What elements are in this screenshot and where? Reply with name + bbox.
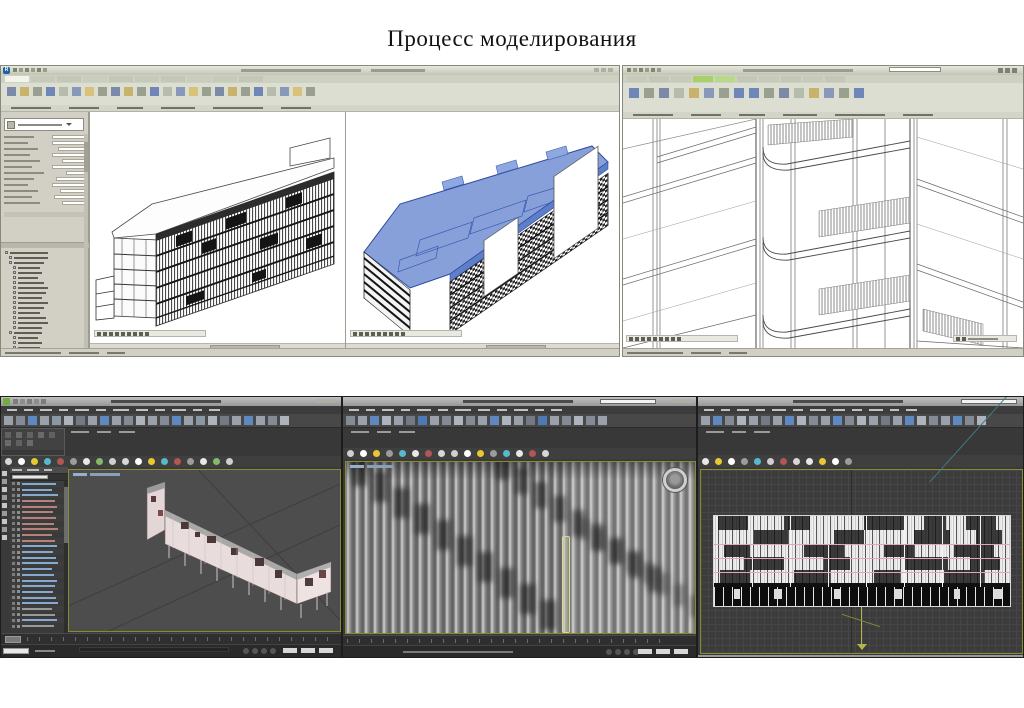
snap-toggle-icon[interactable] [148,458,155,465]
snap-toggle-icon[interactable] [425,450,432,457]
menu-item[interactable] [772,409,786,411]
ribbon-tool-icon[interactable] [674,88,684,98]
toolbar-icon[interactable] [256,416,265,425]
toolbar-icon[interactable] [148,416,157,425]
graphite-ribbon-tabs[interactable] [706,431,778,433]
snap-toggle-icon[interactable] [373,450,380,457]
quick-access-icon[interactable] [25,68,29,72]
ribbon-tab-label[interactable] [732,431,746,433]
snap-toggle-icon[interactable] [516,450,523,457]
snap-toggle-icon[interactable] [702,458,709,465]
toolbar-icon[interactable] [172,416,181,425]
max-titlebar[interactable] [698,397,1023,406]
toolbar-icon[interactable] [64,416,73,425]
toolbar-icon[interactable] [358,416,367,425]
ribbon-tab[interactable] [83,76,107,82]
toolbar-icon[interactable] [40,416,49,425]
snap-toggle-icon[interactable] [438,450,445,457]
ribbon-tool-icon[interactable] [854,88,864,98]
view-control-bar[interactable] [350,330,462,337]
toolbar-icon[interactable] [232,416,241,425]
snaps-toolbar[interactable] [343,448,696,459]
view-control-icon[interactable] [389,332,393,336]
view-control-bar[interactable] [626,335,738,342]
ribbon-tool-icon[interactable] [72,87,81,96]
toolbar-icon[interactable] [773,416,782,425]
menu-item[interactable] [40,409,52,411]
snap-toggle-icon[interactable] [57,458,64,465]
ribbon-tab[interactable] [187,76,211,82]
snap-toggle-icon[interactable] [96,458,103,465]
menu-item[interactable] [514,409,528,411]
snap-toggle-icon[interactable] [819,458,826,465]
pan-icon[interactable] [962,337,966,341]
ribbon-tab[interactable] [803,76,823,82]
ribbon-tab[interactable] [693,76,713,82]
toolbar-icon[interactable] [941,416,950,425]
titlebar-icon[interactable] [1012,68,1017,73]
titlebar-icon[interactable] [1005,68,1010,73]
graphite-ribbon-button[interactable] [38,432,44,438]
menu-bar[interactable] [698,406,1023,414]
menu-item[interactable] [455,409,471,411]
ribbon-tool-icon[interactable] [176,87,185,96]
view-control-icon[interactable] [127,332,131,336]
window-controls[interactable] [672,399,693,403]
explorer-header[interactable] [10,467,68,474]
max-logo-icon[interactable] [3,398,10,405]
snap-toggle-icon[interactable] [542,450,549,457]
titlebar-icons[interactable] [998,68,1019,73]
ribbon-tool-icon[interactable] [137,87,146,96]
toolbar-icon[interactable] [208,416,217,425]
ribbon-tool-icon[interactable] [280,87,289,96]
coordinate-field[interactable] [319,648,333,653]
snap-toggle-icon[interactable] [477,450,484,457]
toolbar-icon[interactable] [586,416,595,425]
ribbon-tool-icon[interactable] [734,88,744,98]
snap-toggle-icon[interactable] [728,458,735,465]
quick-access-icon[interactable] [639,68,643,72]
search-input[interactable] [12,475,48,479]
viewport-layout-tools[interactable] [2,471,10,543]
toolbar-icon[interactable] [598,416,607,425]
ribbon-tab[interactable] [109,76,133,82]
quick-access-icon[interactable] [645,68,649,72]
ribbon-tool-icon[interactable] [749,88,759,98]
toolbar-icon[interactable] [749,416,758,425]
ribbon-tool-icon[interactable] [644,88,654,98]
menu-item[interactable] [75,409,89,411]
quick-access-icon[interactable] [651,68,655,72]
snap-toggle-icon[interactable] [715,458,722,465]
graphite-ribbon-button[interactable] [5,440,11,446]
ribbon-tool-icon[interactable] [306,87,315,96]
snap-toggle-icon[interactable] [451,450,458,457]
transport-button[interactable] [624,649,630,655]
snap-toggle-icon[interactable] [226,458,233,465]
snap-toggle-icon[interactable] [767,458,774,465]
side-tool-icon[interactable] [2,527,7,532]
toolbar-icon[interactable] [466,416,475,425]
toolbar-icon[interactable] [701,416,710,425]
ribbon-tool-icon[interactable] [839,88,849,98]
toolbar-icon[interactable] [797,416,806,425]
toolbar-icon[interactable] [905,416,914,425]
ribbon-tool-icon[interactable] [719,88,729,98]
viewport-front-elevation[interactable] [700,469,1023,654]
ribbon-tool-icon[interactable] [659,88,669,98]
view-control-icon[interactable] [671,337,675,341]
graphite-ribbon-button[interactable] [27,440,33,446]
explorer-search[interactable] [10,474,68,481]
ribbon-tool-icon[interactable] [254,87,263,96]
ribbon-tool-icon[interactable] [267,87,276,96]
ribbon-tab[interactable] [31,76,55,82]
transport-button[interactable] [606,649,612,655]
view-control-icon[interactable] [659,337,663,341]
quick-access-icon[interactable] [627,68,631,72]
ribbon-tab[interactable] [649,76,669,82]
ribbon-tab[interactable] [5,76,29,82]
toolbar-icon[interactable] [442,416,451,425]
snap-toggle-icon[interactable] [70,458,77,465]
search-input[interactable] [889,67,941,72]
view-control-icon[interactable] [383,332,387,336]
menu-item[interactable] [349,409,359,411]
ribbon-tool-icon[interactable] [20,87,29,96]
menu-item[interactable] [366,409,375,411]
revit-logo-icon[interactable]: R [3,67,10,74]
ribbon-tool-icon[interactable] [46,87,55,96]
snap-toggle-icon[interactable] [83,458,90,465]
navigation-bar[interactable] [953,335,1017,342]
menu-item[interactable] [497,409,507,411]
toolbar-icon[interactable] [725,416,734,425]
project-toolbar[interactable] [13,399,48,404]
toolbar-icon[interactable] [76,416,85,425]
titlebar-icon[interactable] [998,68,1003,73]
ribbon-modify[interactable] [623,83,1023,119]
search-input[interactable] [961,399,1017,404]
viewport-3d-selection[interactable] [345,112,620,350]
project-toolbar-icon[interactable] [41,399,46,404]
snap-toggle-icon[interactable] [347,450,354,457]
toolbar-icon[interactable] [112,416,121,425]
quick-access-icon[interactable] [19,68,23,72]
snap-toggle-icon[interactable] [174,458,181,465]
snap-toggle-icon[interactable] [754,458,761,465]
viewport-label[interactable] [350,465,364,468]
project-browser-header[interactable] [1,242,89,248]
quick-access-toolbar[interactable] [13,68,49,72]
toolbar-icon[interactable] [857,416,866,425]
ribbon-tab-label[interactable] [119,431,135,433]
window-control-button[interactable] [601,68,606,72]
viewport-perspective[interactable] [68,469,341,632]
properties-palette[interactable] [1,112,89,348]
menu-item[interactable] [704,409,714,411]
menu-item[interactable] [551,409,562,411]
project-toolbar-icon[interactable] [13,399,18,404]
snap-toggle-icon[interactable] [503,450,510,457]
snap-toggle-icon[interactable] [529,450,536,457]
toolbar-icon[interactable] [136,416,145,425]
snap-toggle-icon[interactable] [44,458,51,465]
graphite-ribbon-button[interactable] [16,440,22,446]
selected-louver[interactable] [562,536,570,633]
menu-item[interactable] [869,409,883,411]
toolbar-icon[interactable] [502,416,511,425]
view-control-icon[interactable] [401,332,405,336]
building-facade-model[interactable] [713,515,1011,607]
explorer-object-list[interactable] [10,481,64,633]
toolbar-icon[interactable] [737,416,746,425]
view-control-icon[interactable] [139,332,143,336]
snap-toggle-icon[interactable] [793,458,800,465]
window-control-button[interactable] [672,399,677,403]
menu-item[interactable] [852,409,862,411]
side-tool-icon[interactable] [2,479,7,484]
menu-item[interactable] [438,409,448,411]
snap-toggle-icon[interactable] [490,450,497,457]
snap-toggle-icon[interactable] [18,458,25,465]
toolbar-icon[interactable] [370,416,379,425]
toolbar-icon[interactable] [478,416,487,425]
view-control-icon[interactable] [365,332,369,336]
toolbar-icon[interactable] [713,416,722,425]
ribbon-tool-icon[interactable] [689,88,699,98]
ribbon-tool-icon[interactable] [241,87,250,96]
ribbon-tool-icon[interactable] [33,87,42,96]
toolbar-icon[interactable] [917,416,926,425]
toolbar-icon[interactable] [893,416,902,425]
toolbar-icon[interactable] [929,416,938,425]
ribbon-tab-bar[interactable] [623,75,1023,83]
time-slider[interactable] [5,636,21,643]
toolbar-icon[interactable] [953,416,962,425]
snap-toggle-icon[interactable] [386,450,393,457]
view-control-icon[interactable] [353,332,357,336]
window-controls[interactable] [594,68,615,72]
side-tool-icon[interactable] [2,487,7,492]
explorer-object-row[interactable] [10,623,64,629]
chevron-down-icon[interactable] [66,123,72,126]
ribbon-tab[interactable] [759,76,779,82]
view-control-icon[interactable] [359,332,363,336]
viewport-label[interactable] [367,465,393,468]
toolbar-icon[interactable] [526,416,535,425]
snap-toggle-icon[interactable] [832,458,839,465]
toolbar-icon[interactable] [184,416,193,425]
view-control-icon[interactable] [629,337,633,341]
menu-item[interactable] [155,409,165,411]
toolbar-icon[interactable] [490,416,499,425]
ribbon-tab-label[interactable] [97,431,111,433]
menu-item[interactable] [401,409,410,411]
max-titlebar[interactable] [1,397,341,406]
toolbar-icon[interactable] [845,416,854,425]
viewport-label[interactable] [350,465,396,468]
ribbon-tab-label[interactable] [706,431,724,433]
ribbon-tool-icon[interactable] [59,87,68,96]
snap-toggle-icon[interactable] [741,458,748,465]
ribbon-tab[interactable] [671,76,691,82]
toolbar-icon[interactable] [881,416,890,425]
coordinate-field[interactable] [656,649,670,654]
toolbar-icon[interactable] [4,416,13,425]
transport-button[interactable] [252,648,258,654]
properties-group-header[interactable] [4,212,84,217]
project-browser-tree[interactable] [3,250,83,350]
toolbar-icon[interactable] [454,416,463,425]
ribbon-tab[interactable] [825,76,845,82]
toolbar-icon[interactable] [574,416,583,425]
view-control-icon[interactable] [145,332,149,336]
window-control-button[interactable] [317,399,322,403]
snap-toggle-icon[interactable] [109,458,116,465]
quick-access-icon[interactable] [13,68,17,72]
graphite-ribbon-tabs[interactable] [351,431,423,433]
toolbar-icon[interactable] [965,416,974,425]
toolbar-icon[interactable] [562,416,571,425]
toolbar-icon[interactable] [394,416,403,425]
timeline[interactable] [343,635,696,645]
ribbon-tab-label[interactable] [377,431,391,433]
graphite-ribbon-panel[interactable] [1,428,65,456]
view-control-icon[interactable] [635,337,639,341]
menu-item[interactable] [24,409,33,411]
toolbar-icon[interactable] [869,416,878,425]
ribbon-tool-icon[interactable] [228,87,237,96]
toolbar-icon[interactable] [268,416,277,425]
ribbon-tab[interactable] [135,76,159,82]
toolbar-icon[interactable] [16,416,25,425]
ribbon-tool-icon[interactable] [111,87,120,96]
main-toolbar[interactable] [1,414,341,428]
quick-access-icon[interactable] [633,68,637,72]
zoom-icon[interactable] [956,337,960,341]
menu-item[interactable] [113,409,129,411]
graphite-ribbon-button[interactable] [49,432,55,438]
ribbon-tool-icon[interactable] [202,87,211,96]
view-control-icon[interactable] [371,332,375,336]
ribbon-tool-icon[interactable] [150,87,159,96]
ribbon-tab-bar[interactable] [1,75,619,83]
viewport-wireframe-detail[interactable] [623,119,1023,348]
view-control-icon[interactable] [115,332,119,336]
snap-toggle-icon[interactable] [360,450,367,457]
snap-toggle-icon[interactable] [161,458,168,465]
toolbar-icon[interactable] [785,416,794,425]
ribbon-tool-icon[interactable] [215,87,224,96]
menu-item[interactable] [59,409,68,411]
side-tool-icon[interactable] [2,535,7,540]
toolbar-icon[interactable] [100,416,109,425]
menu-item[interactable] [890,409,899,411]
quick-access-icon[interactable] [43,68,47,72]
graphite-ribbon-button[interactable] [16,432,22,438]
view-control-icon[interactable] [377,332,381,336]
view-control-icon[interactable] [653,337,657,341]
menu-item[interactable] [382,409,394,411]
menu-item[interactable] [209,409,220,411]
toolbar-icon[interactable] [160,416,169,425]
ribbon-tool-icon[interactable] [98,87,107,96]
toolbar-icon[interactable] [550,416,559,425]
toolbar-icon[interactable] [52,416,61,425]
main-toolbar[interactable] [698,414,1023,428]
snap-toggle-icon[interactable] [845,458,852,465]
ribbon-tool-icon[interactable] [189,87,198,96]
ribbon-tool-icon[interactable] [293,87,302,96]
coordinate-field[interactable] [638,649,652,654]
search-input[interactable] [600,399,656,404]
side-tool-icon[interactable] [2,511,7,516]
window-control-button[interactable] [679,399,684,403]
ribbon-tool-icon[interactable] [809,88,819,98]
viewport-louvers[interactable] [345,461,696,634]
view-control-icon[interactable] [647,337,651,341]
toolbar-icon[interactable] [821,416,830,425]
toolbar-icon[interactable] [244,416,253,425]
ribbon-tool-icon[interactable] [794,88,804,98]
quick-access-toolbar[interactable] [627,68,663,72]
toolbar-icon[interactable] [418,416,427,425]
ribbon-tool-icon[interactable] [704,88,714,98]
toolbar-icon[interactable] [761,416,770,425]
steering-wheel-icon[interactable] [663,468,687,492]
side-tool-icon[interactable] [2,471,7,476]
snap-toggle-icon[interactable] [135,458,142,465]
snap-toggle-icon[interactable] [122,458,129,465]
toolbar-icon[interactable] [28,416,37,425]
window-control-button[interactable] [686,399,691,403]
snap-toggle-icon[interactable] [31,458,38,465]
toolbar-icon[interactable] [833,416,842,425]
toolbar-icon[interactable] [88,416,97,425]
snap-toggle-icon[interactable] [780,458,787,465]
menu-item[interactable] [172,409,186,411]
max-titlebar[interactable] [343,397,696,406]
ribbon-tab[interactable] [213,76,237,82]
ribbon-tab[interactable] [57,76,81,82]
snap-toggle-icon[interactable] [213,458,220,465]
type-selector[interactable] [4,118,84,131]
transport-button[interactable] [615,649,621,655]
quick-access-icon[interactable] [37,68,41,72]
menu-item[interactable] [721,409,730,411]
revit-titlebar[interactable]: R [1,66,619,75]
revit-titlebar[interactable] [623,66,1023,75]
menu-item[interactable] [833,409,845,411]
window-control-button[interactable] [608,68,613,72]
view-control-icon[interactable] [395,332,399,336]
menu-item[interactable] [417,409,431,411]
project-toolbar-icon[interactable] [34,399,39,404]
graphite-ribbon-button[interactable] [5,432,11,438]
coordinate-field[interactable] [301,648,315,653]
snap-toggle-icon[interactable] [200,458,207,465]
toolbar-icon[interactable] [346,416,355,425]
main-toolbar[interactable] [343,414,696,428]
view-control-icon[interactable] [677,337,681,341]
menu-item[interactable] [737,409,749,411]
ribbon-tab-label[interactable] [399,431,415,433]
side-tool-icon[interactable] [2,519,7,524]
snap-toggle-icon[interactable] [464,450,471,457]
ribbon-tab-label[interactable] [351,431,369,433]
